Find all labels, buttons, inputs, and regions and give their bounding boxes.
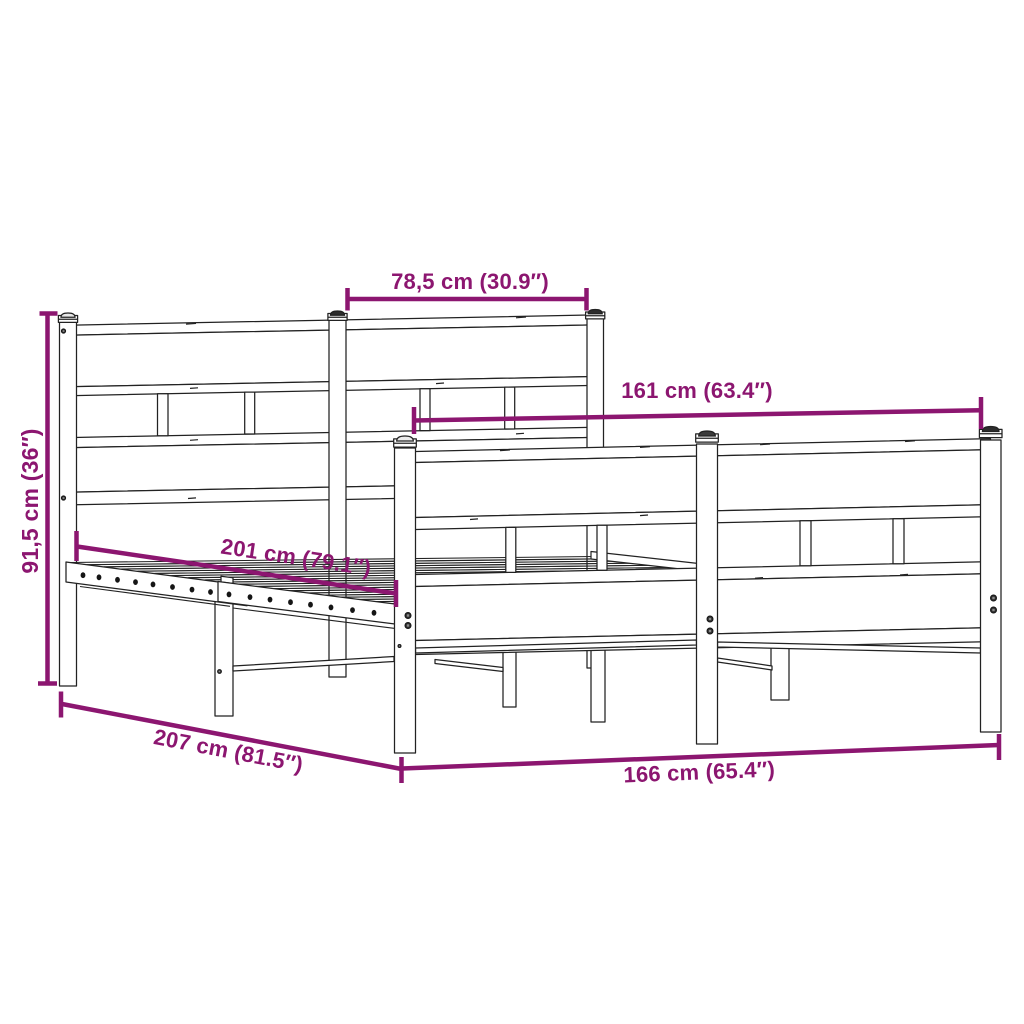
svg-text:161 cm (63.4″): 161 cm (63.4″) xyxy=(621,378,773,403)
svg-text:78,5 cm (30.9″): 78,5 cm (30.9″) xyxy=(391,269,549,294)
svg-text:91,5 cm (36″): 91,5 cm (36″) xyxy=(17,428,43,573)
